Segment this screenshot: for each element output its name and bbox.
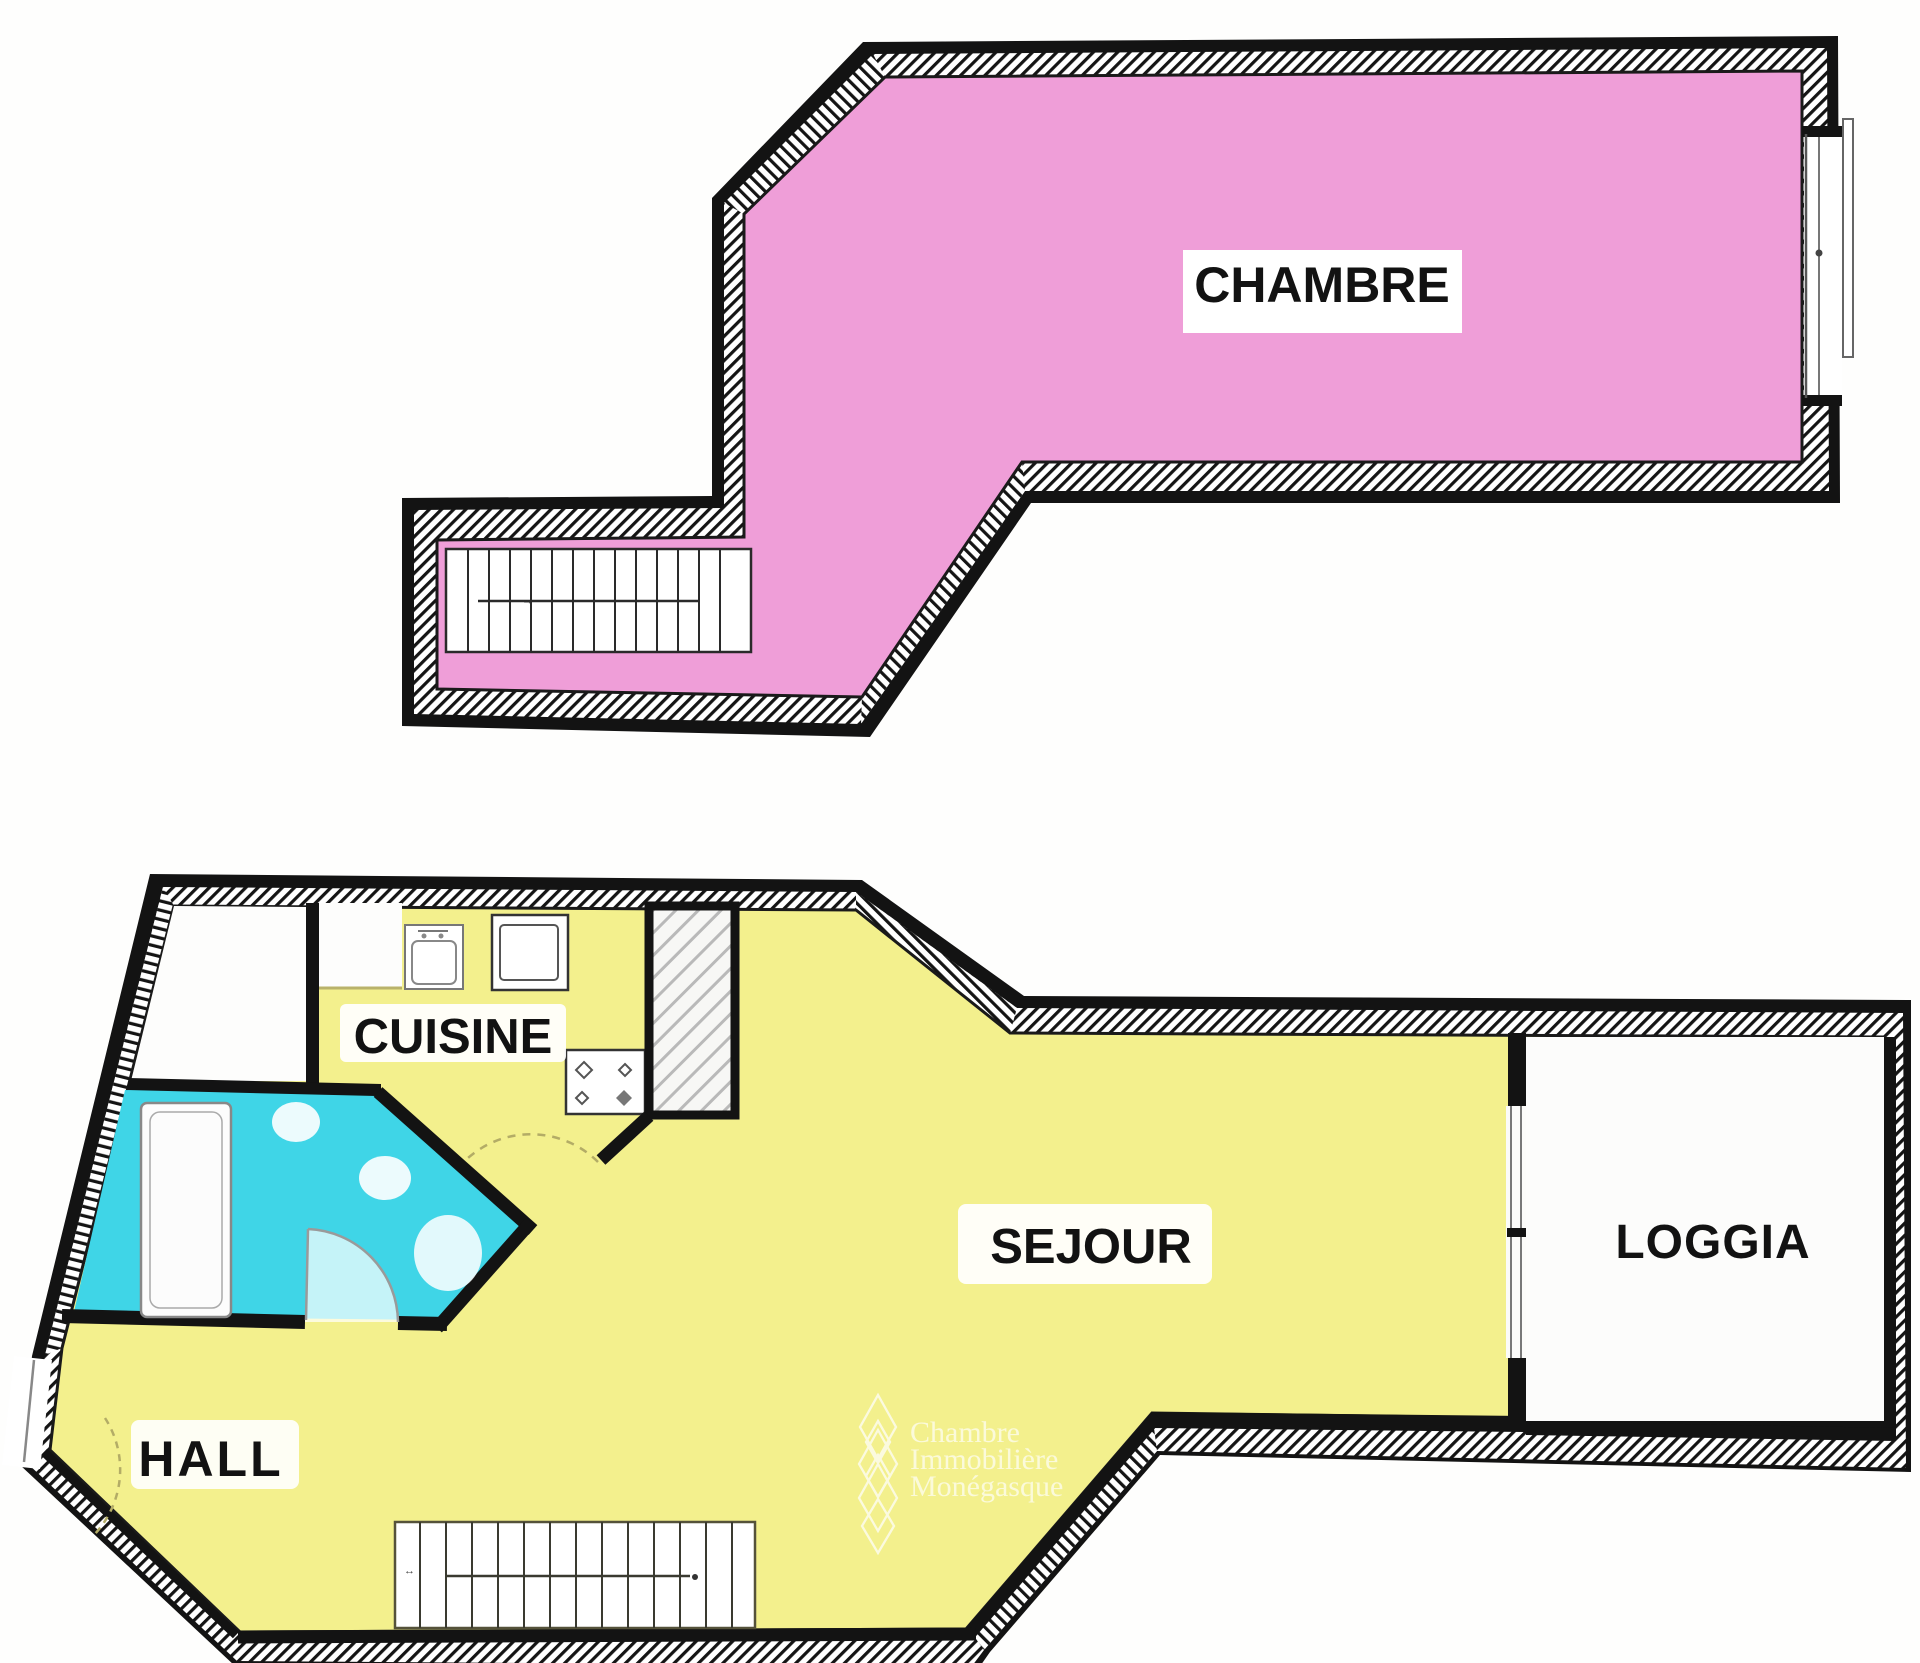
- svg-text:↔: ↔: [404, 1565, 415, 1577]
- svg-text:HALL: HALL: [138, 1431, 283, 1487]
- svg-text:Monégasque: Monégasque: [910, 1470, 1063, 1503]
- svg-text:LOGGIA: LOGGIA: [1615, 1216, 1810, 1269]
- svg-text:CHAMBRE: CHAMBRE: [1194, 257, 1450, 313]
- svg-text:SEJOUR: SEJOUR: [990, 1220, 1192, 1274]
- svg-text:→: →: [522, 595, 533, 607]
- svg-text:CUISINE: CUISINE: [354, 1010, 553, 1064]
